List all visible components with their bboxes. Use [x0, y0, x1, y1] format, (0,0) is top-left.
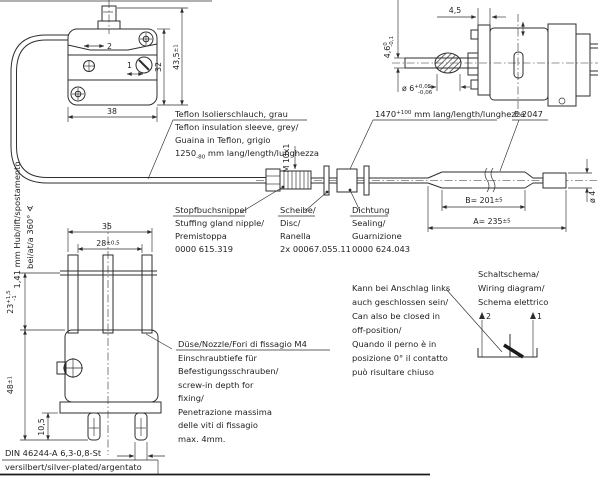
schematic-terminal-2-label: 2: [486, 312, 491, 321]
note-off-line3: Can also be closed in: [352, 311, 440, 321]
disc-1: [324, 166, 329, 195]
seal-block: [337, 169, 357, 192]
head-slot: [514, 52, 523, 78]
probe-code-leader-line: [500, 120, 519, 171]
nozzle-leader-line: [146, 334, 172, 349]
din-title-block: DIN 46244-A 6,3-0,8-St versilbert/silver…: [0, 448, 430, 475]
gland-hex-nut: [266, 169, 280, 191]
note-stroke-line1: 1,41 mm Hub/lift/spostamento: [12, 161, 22, 288]
dim-4-5-label: 4,5: [449, 6, 461, 15]
switch-terminal-2-label: 2: [107, 42, 112, 51]
terminal-blade-right: [142, 255, 152, 333]
note-capillary-length: 1470+100 mm lang/length/lunghezza: [350, 109, 525, 169]
capillary-probe: ø 4 B= 201±5 A= 235±5: [428, 159, 597, 232]
switch-terminal-1-label: 1: [127, 61, 132, 70]
dim-B-label: B= 201±5: [465, 196, 503, 205]
dim-48-label: 48±1: [6, 375, 15, 394]
dim-38-label: 38: [107, 107, 117, 116]
note-gland-line3: Premistoppa: [175, 231, 227, 241]
dim-43-5-label: 43,5±1: [172, 44, 181, 70]
schematic-title-line1: Schaltschema/: [478, 269, 539, 279]
schematic-title-line2: Wiring diagram/: [478, 283, 545, 293]
disc-2: [364, 166, 369, 195]
note-off-line7: può risultare chiuso: [352, 367, 434, 377]
note-nozzle-line3: Befestigungsschrauben/: [178, 366, 279, 376]
screw-center: [84, 61, 95, 72]
schematic-contact-blade: [504, 345, 523, 357]
dim-probe-end-dia-label: ø 4: [588, 191, 597, 203]
note-teflon: Teflon Isolierschlauch, grau Teflon insu…: [173, 109, 319, 161]
note-nozzle-line4: screw-in depth for: [178, 380, 254, 390]
note-off-line2: auch geschlossen sein/: [352, 297, 448, 307]
note-nozzle-line7: delle viti di fissagio: [178, 420, 258, 430]
note-nozzle: Düse/Nozzle/Fori di fissagio M4 Einschra…: [176, 339, 330, 444]
note-teflon-line4: 1250-80 mm lang/length/lunghezza: [175, 148, 319, 161]
note-nozzle-line5: fixing/: [178, 393, 204, 403]
dim-4-6-label: 4,60-0,1: [383, 35, 395, 58]
note-disc-line2: Disc/: [280, 218, 301, 228]
dim-probe-dia-label: ø 6+0,05-0,06: [402, 84, 433, 96]
note-seal-line3: Guarnizione: [352, 231, 402, 241]
note-nozzle-line8: max. 4mm.: [178, 434, 225, 444]
probe-code-label: F-2047: [514, 109, 543, 119]
note-gland-line1: Stopfbuchsnippel: [175, 205, 247, 215]
screw-bottom-left: [71, 87, 85, 101]
dim-35-label: 35: [102, 222, 112, 231]
note-disc: Scheibe/ Disc/ Ranella 2x 00067.055.11: [278, 205, 351, 254]
adjustment-screw: [136, 57, 152, 73]
switch-top-view: 2 1 32 43,5±1 38: [68, 0, 188, 122]
note-seal: Dichtung Sealing/ Guarnizione 0000 624.0…: [350, 205, 410, 254]
thermostat-technical-drawing: 2 1 32 43,5±1 38 Teflon Isolierschlauch,…: [0, 0, 600, 477]
switch-housing: [548, 24, 576, 106]
screw-top-right: [139, 32, 153, 46]
schematic-base: [478, 348, 537, 357]
note-teflon-line2: Teflon insulation sleeve, grey/: [174, 122, 299, 132]
terminal-blade-left: [68, 255, 78, 333]
thermostat-base: [60, 402, 161, 413]
dim-10-5-label: 10,5: [37, 418, 46, 435]
note-teflon-line3: Guaina in Teflon, grigio: [175, 135, 271, 145]
note-seal-line1: Dichtung: [352, 205, 390, 215]
note-teflon-line1: Teflon Isolierschlauch, grau: [174, 109, 288, 119]
capillary-leader-line: [350, 120, 373, 169]
din-spec-line2: versilbert/silver-plated/argentato: [5, 462, 142, 472]
dim-A-label: A= 235±5: [473, 217, 511, 226]
schematic-title-line3: Schema elettrico: [478, 297, 548, 307]
schematic-terminal-1-arrow: [530, 312, 536, 319]
note-off-line5: Quando il perno è in: [352, 339, 436, 349]
note-disc-line4: 2x 00067.055.11: [280, 244, 351, 254]
shaft-hatched-section: [435, 53, 461, 73]
technical-drawing-canvas: 2 1 32 43,5±1 38 Teflon Isolierschlauch,…: [0, 0, 600, 477]
dim-28-label: 28±0,5: [96, 239, 120, 248]
note-nozzle-line6: Penetrazione massima: [178, 407, 272, 417]
note-disc-line3: Ranella: [280, 231, 311, 241]
note-nozzle-line1: Düse/Nozzle/Fori di fissagio M4: [178, 339, 307, 349]
head-body: [490, 28, 548, 100]
thermostat-body: [65, 330, 158, 402]
dim-thread-label: M 10x1: [282, 144, 291, 173]
note-seal-line2: Sealing/: [352, 218, 386, 228]
note-nozzle-line2: Einschraubtiefe für: [178, 353, 257, 363]
note-disc-line1: Scheibe/: [280, 205, 316, 215]
note-off-line1: Kann bei Anschlag links: [352, 283, 450, 293]
note-off-line6: posizione 0° il contatto: [352, 353, 448, 363]
teflon-leader-line: [148, 120, 173, 179]
probe-end-sleeve: [543, 173, 566, 188]
schematic-terminal-2-arrow: [479, 312, 485, 319]
mounting-plate: [478, 25, 490, 95]
wiring-schematic: Schaltschema/ Wiring diagram/ Schema ele…: [478, 269, 548, 357]
note-seal-line4: 0000 624.043: [352, 244, 410, 254]
gland-thread: [280, 171, 311, 189]
note-capillary-text: 1470+100 mm lang/length/lunghezza: [375, 109, 525, 119]
head-side-view: 4,60-0,1 ø 6+0,05-0,06 4,5: [383, 0, 598, 112]
dim-32-label: 32: [154, 62, 163, 72]
dim-23-label: 23+1,5-1: [6, 290, 18, 314]
din-spec-line1: DIN 46244-A 6,3-0,8-St: [5, 448, 102, 458]
note-gland-line4: 0000 615.319: [175, 244, 233, 254]
note-gland-line2: Stuffing gland nipple/: [175, 218, 264, 228]
schematic-terminal-1-label: 1: [537, 312, 542, 321]
note-stroke-line2: bei/at/a 360° ∢: [25, 205, 35, 269]
note-off-line4: off-position/: [352, 325, 402, 335]
note-gland: Stopfbuchsnippel Stuffing gland nipple/ …: [173, 205, 264, 254]
